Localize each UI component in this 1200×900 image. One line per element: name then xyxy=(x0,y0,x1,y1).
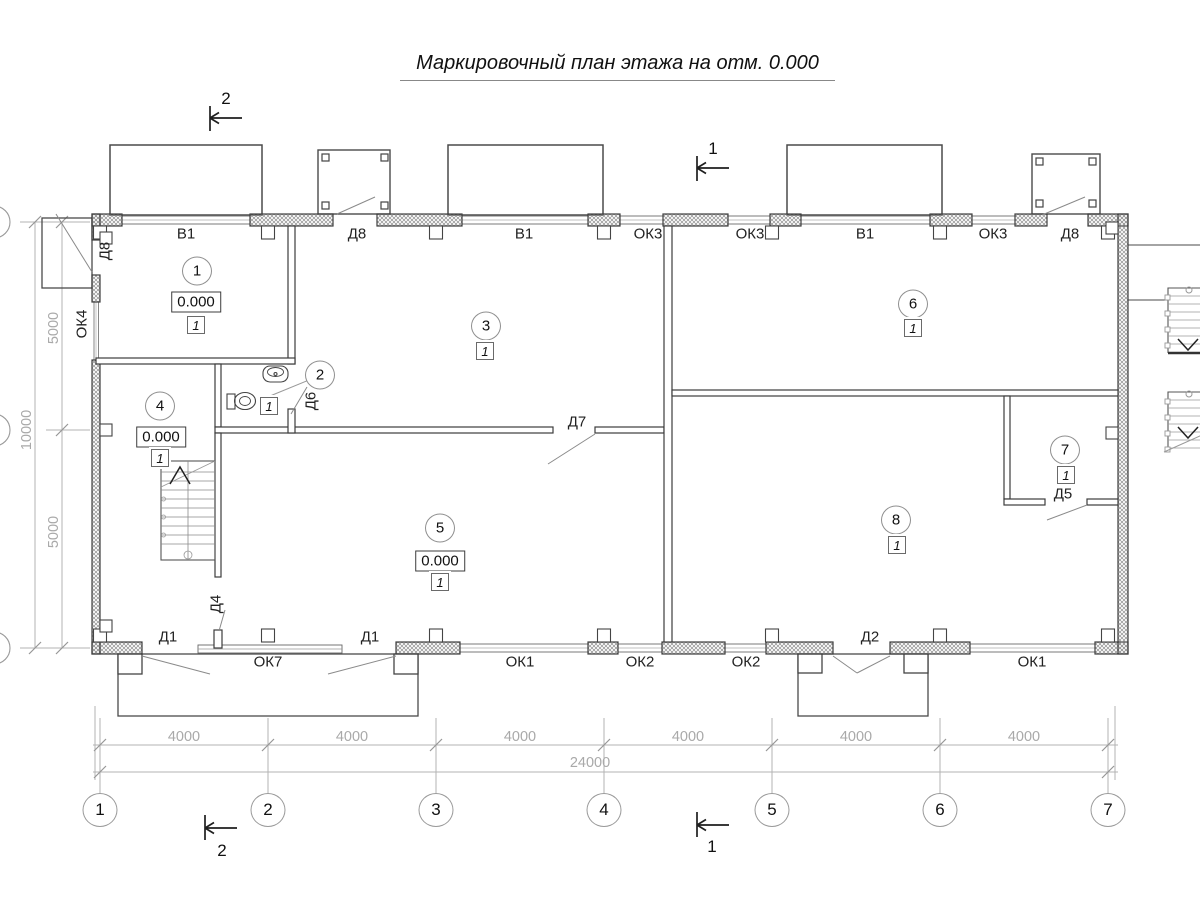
floor-plan-canvas: Маркировочный план этажа на отм. 0.000 В… xyxy=(0,0,1200,900)
exterior-walls xyxy=(92,214,1128,654)
exterior-stairs xyxy=(1128,245,1200,452)
staircase xyxy=(161,461,215,560)
drawing-title: Маркировочный план этажа на отм. 0.000 xyxy=(400,52,835,81)
left-axis-bubbles xyxy=(0,206,10,664)
toilet-icon xyxy=(227,394,235,409)
entrance-tambours xyxy=(318,150,1100,214)
porches xyxy=(118,654,928,716)
dimension-ticks xyxy=(29,216,1114,778)
wc-fixtures xyxy=(227,366,288,410)
plan-drawing xyxy=(0,0,1200,900)
door-swings xyxy=(56,197,1087,674)
sink-icon xyxy=(263,366,288,382)
interior-walls xyxy=(96,226,1118,648)
dimension-lines xyxy=(20,222,1118,793)
entrance-bays xyxy=(42,145,942,288)
